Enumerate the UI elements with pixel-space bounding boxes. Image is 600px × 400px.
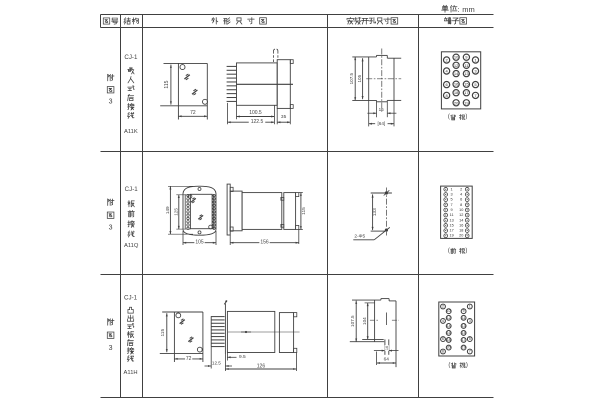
svg-text:1: 1 [451,187,453,191]
svg-text:9: 9 [465,55,468,60]
svg-text:20: 20 [447,346,451,350]
svg-text:20: 20 [454,100,459,105]
svg-text:9.5: 9.5 [239,354,246,360]
svg-text:105: 105 [357,74,362,82]
svg-text:107.5: 107.5 [349,72,354,84]
svg-text:72: 72 [186,356,192,362]
svg-text:): ) [466,362,468,368]
svg-text:6: 6 [442,337,444,341]
svg-text:16: 16 [385,346,389,350]
svg-text:16: 16 [447,331,451,335]
svg-text:3: 3 [451,192,453,196]
svg-text:12.5: 12.5 [212,361,221,366]
svg-text:122.5: 122.5 [251,119,264,125]
svg-text:3: 3 [474,69,477,74]
svg-text:3: 3 [469,319,471,323]
svg-text:6: 6 [445,82,448,87]
svg-text:7: 7 [469,350,471,354]
svg-text:16: 16 [459,223,463,227]
svg-text:5: 5 [474,82,477,87]
svg-text:13: 13 [464,71,469,76]
svg-text:18: 18 [447,338,451,342]
svg-text:133: 133 [372,208,378,216]
svg-text:115: 115 [164,80,170,88]
svg-text::: : [457,5,459,14]
svg-text:3: 3 [109,225,113,232]
svg-text:18: 18 [459,229,463,233]
svg-text:10: 10 [454,55,459,60]
svg-text:): ) [465,248,467,254]
svg-text:13: 13 [449,218,453,222]
svg-text:8: 8 [442,350,444,354]
svg-text:19: 19 [449,234,453,238]
svg-text:156: 156 [260,240,269,246]
svg-text:12: 12 [447,316,451,320]
svg-text:14: 14 [454,71,459,76]
svg-text:A11K: A11K [124,129,138,135]
svg-text:14: 14 [447,324,451,328]
svg-text:7: 7 [474,93,477,98]
svg-text:16: 16 [454,82,459,87]
svg-text:14: 14 [459,218,463,222]
svg-text:2: 2 [442,305,444,309]
svg-text:17: 17 [449,229,453,233]
svg-text:(: ( [448,362,450,368]
svg-text:mm: mm [462,5,475,14]
svg-text:7: 7 [451,203,453,207]
svg-text:35: 35 [281,114,287,120]
svg-text:4: 4 [442,319,444,323]
svg-text:19: 19 [464,100,469,105]
svg-text:A11H: A11H [124,370,138,376]
svg-text:2: 2 [460,187,462,191]
svg-text:15: 15 [464,82,469,87]
svg-text:64: 64 [384,357,390,363]
svg-text:12: 12 [459,213,463,217]
svg-text:4: 4 [445,69,448,74]
svg-text:5: 5 [469,337,471,341]
svg-text:8: 8 [445,93,448,98]
svg-text:13: 13 [462,324,466,328]
svg-text:104: 104 [362,317,367,325]
svg-text:126: 126 [257,363,266,369]
svg-text:149: 149 [165,206,170,214]
svg-text:4: 4 [460,192,462,196]
svg-text:105: 105 [195,240,204,246]
svg-text:16: 16 [379,107,385,112]
svg-text:CJ-1: CJ-1 [124,295,138,302]
svg-text:(: ( [448,114,450,120]
svg-text:9: 9 [451,208,453,212]
svg-text:72: 72 [190,110,196,116]
svg-text:2-Φ5: 2-Φ5 [354,234,365,240]
svg-text:10: 10 [459,208,463,212]
svg-text:3: 3 [109,345,113,352]
svg-text:15: 15 [449,223,453,227]
svg-text:125: 125 [173,208,178,216]
svg-text:9: 9 [463,309,465,313]
svg-text:18: 18 [454,90,459,95]
svg-text:115: 115 [301,207,307,215]
svg-text:2: 2 [445,58,448,63]
svg-text:10: 10 [447,309,451,313]
svg-text:5: 5 [451,198,453,202]
svg-text:6: 6 [460,198,462,202]
svg-text:11: 11 [462,316,466,320]
svg-text:3: 3 [109,98,113,105]
svg-text:(: ( [448,248,450,254]
svg-text:115: 115 [160,329,166,337]
svg-text:20: 20 [459,234,463,238]
svg-text:15: 15 [462,331,466,335]
svg-text:17: 17 [464,90,469,95]
svg-text:100.5: 100.5 [249,110,262,116]
svg-text:17: 17 [462,338,466,342]
svg-text:8: 8 [460,203,462,207]
svg-text:19: 19 [462,346,466,350]
svg-text:11: 11 [450,213,454,217]
svg-text:12: 12 [454,63,459,68]
svg-text:1: 1 [474,58,477,63]
svg-text:1: 1 [469,305,471,309]
svg-text:CJ-1: CJ-1 [124,54,138,61]
svg-text:107.5: 107.5 [350,315,355,327]
svg-text:): ) [465,114,467,120]
svg-text:A11Q: A11Q [124,243,139,249]
svg-text:[64]: [64] [378,121,386,126]
svg-text:CJ-1: CJ-1 [125,186,139,193]
